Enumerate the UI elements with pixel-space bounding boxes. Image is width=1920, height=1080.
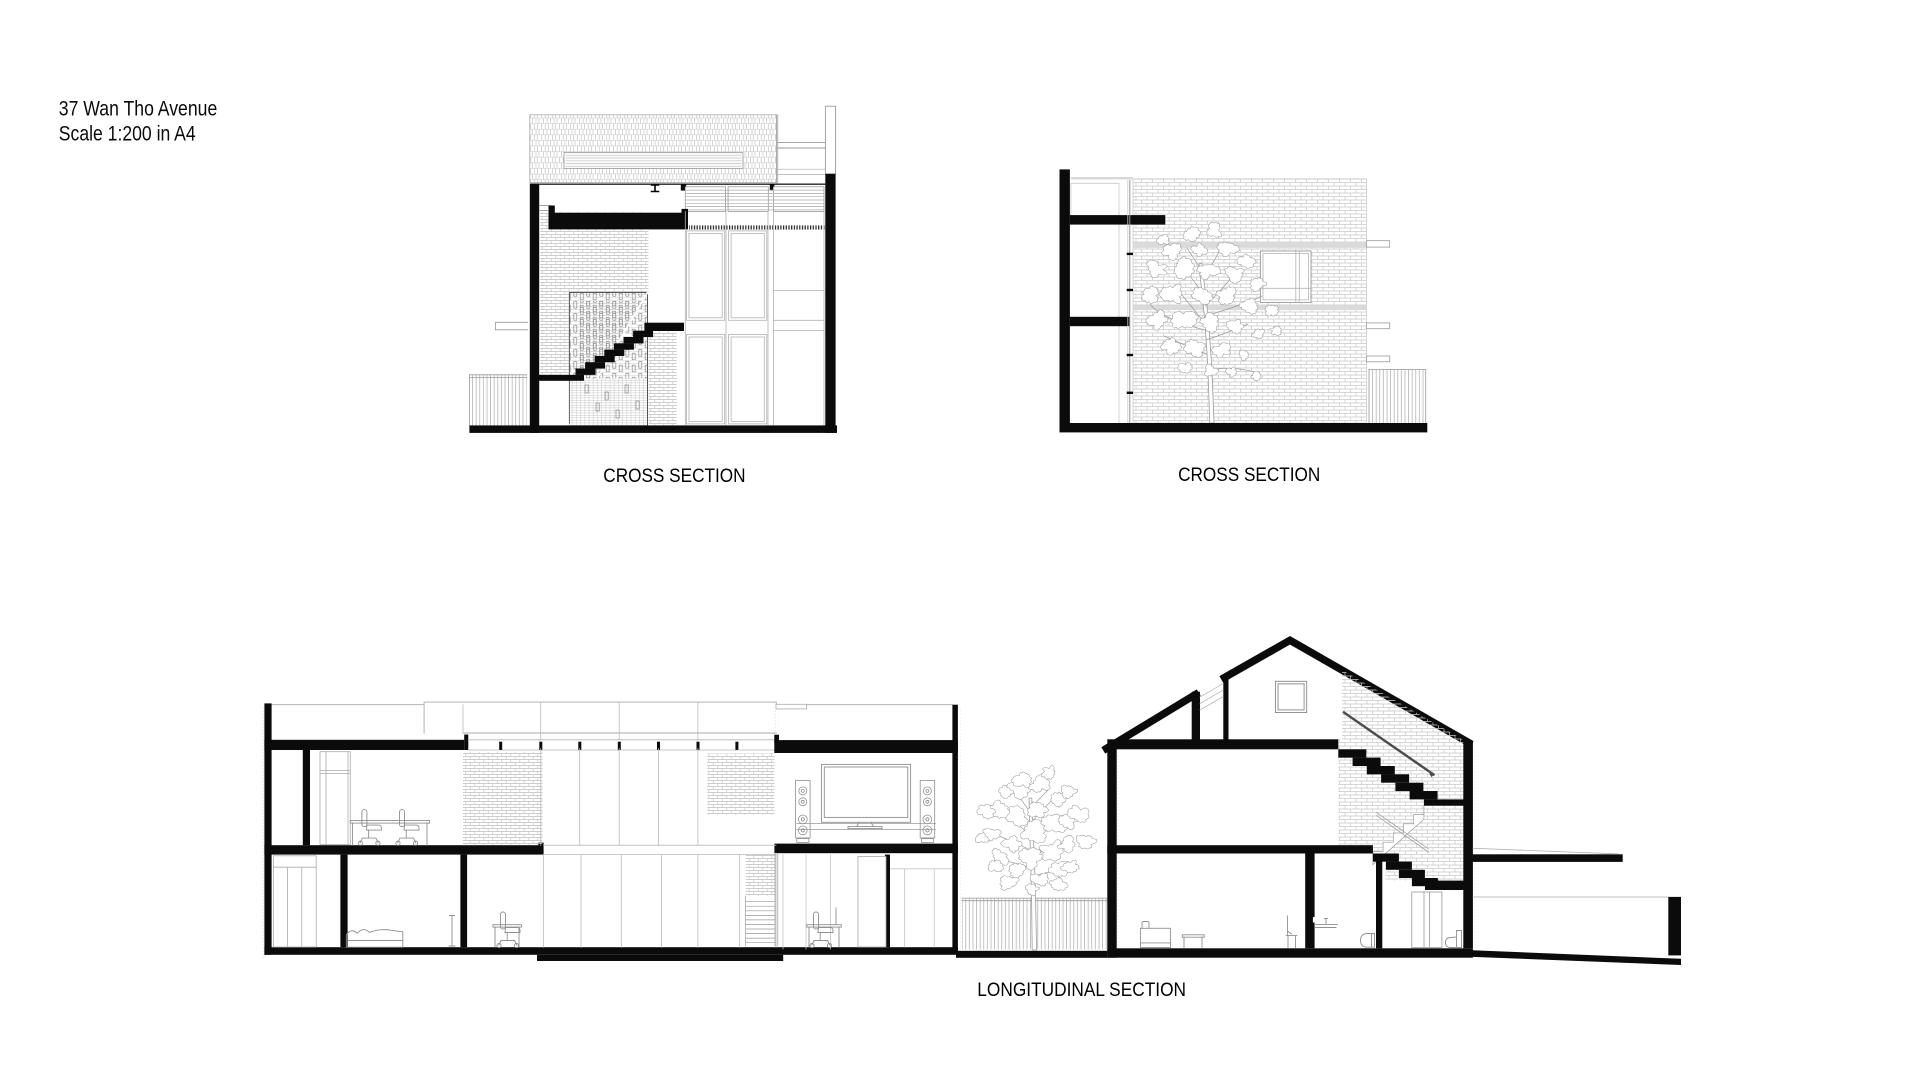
svg-text:Scale 1:200 in A4: Scale 1:200 in A4 <box>59 122 196 145</box>
svg-text:37 Wan Tho Avenue: 37 Wan Tho Avenue <box>59 98 218 121</box>
svg-text:LONGITUDINAL SECTION: LONGITUDINAL SECTION <box>977 979 1186 1001</box>
svg-text:CROSS SECTION: CROSS SECTION <box>1178 464 1320 486</box>
svg-text:CROSS SECTION: CROSS SECTION <box>603 465 745 487</box>
